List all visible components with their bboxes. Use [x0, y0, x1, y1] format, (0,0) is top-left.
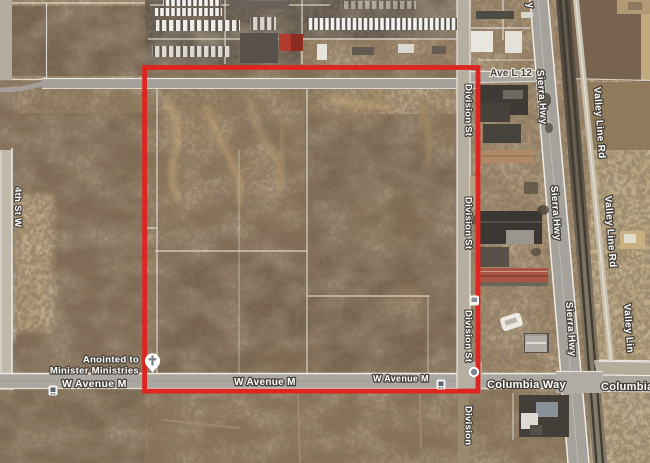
svg-text:Division St: Division St — [463, 197, 474, 250]
svg-text:Columbia Way: Columbia Way — [487, 379, 567, 391]
svg-text:Minister Ministries: Minister Ministries — [50, 366, 139, 377]
svg-text:Division St: Division St — [463, 84, 474, 137]
svg-text:Columbia W: Columbia W — [601, 381, 650, 393]
svg-text:Anointed to: Anointed to — [83, 355, 139, 366]
svg-text:W Avenue M: W Avenue M — [234, 377, 296, 388]
svg-text:W Avenue M: W Avenue M — [373, 374, 429, 384]
svg-text:Division: Division — [463, 406, 474, 445]
svg-text:4th St W: 4th St W — [12, 187, 23, 227]
svg-text:Ave L 12: Ave L 12 — [490, 68, 532, 79]
svg-text:Division St: Division St — [463, 310, 474, 363]
svg-text:W Avenue M: W Avenue M — [62, 378, 127, 390]
